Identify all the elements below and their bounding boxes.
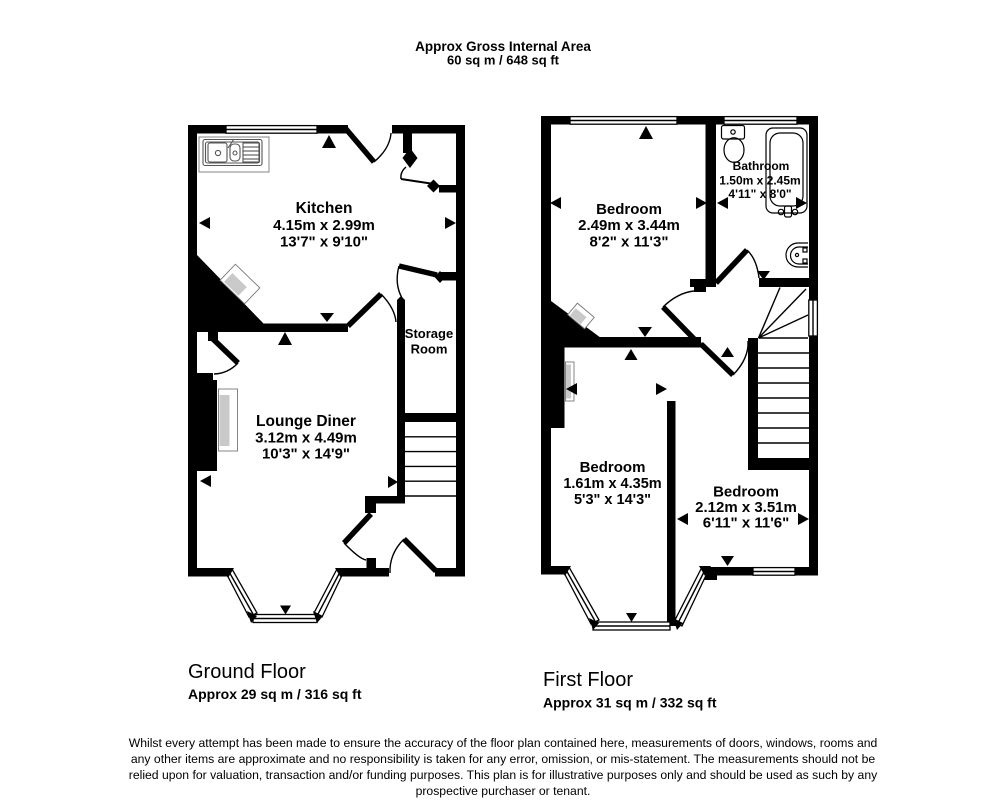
svg-text:Bathroom: Bathroom (733, 159, 790, 173)
svg-text:13'7" x 9'10": 13'7" x 9'10" (280, 234, 368, 251)
svg-text:Lounge Diner: Lounge Diner (256, 413, 356, 430)
svg-text:2.49m x 3.44m: 2.49m x 3.44m (578, 217, 680, 234)
svg-text:6'11" x 11'6": 6'11" x 11'6" (703, 515, 789, 532)
svg-text:First Floor: First Floor (543, 669, 633, 691)
svg-text:5'3" x 14'3": 5'3" x 14'3" (574, 492, 651, 508)
svg-text:relied upon for valuation, tra: relied upon for valuation, transaction a… (129, 768, 878, 782)
svg-text:Whilst every attempt has been: Whilst every attempt has been made to en… (129, 736, 878, 750)
svg-text:4.15m x 2.99m: 4.15m x 2.99m (273, 217, 375, 234)
svg-text:8'2" x 11'3": 8'2" x 11'3" (590, 234, 669, 251)
svg-text:Bedroom: Bedroom (713, 484, 779, 501)
svg-text:3.12m x 4.49m: 3.12m x 4.49m (255, 430, 357, 447)
svg-text:Kitchen: Kitchen (296, 200, 353, 217)
svg-text:Bedroom: Bedroom (580, 459, 646, 476)
svg-text:Approx 31 sq m / 332 sq ft: Approx 31 sq m / 332 sq ft (543, 695, 717, 711)
svg-text:1.50m x 2.45m: 1.50m x 2.45m (719, 174, 800, 188)
svg-text:4'11" x 8'0": 4'11" x 8'0" (728, 187, 791, 201)
svg-text:10'3" x 14'9": 10'3" x 14'9" (262, 446, 350, 463)
svg-text:Room: Room (411, 342, 448, 357)
svg-text:any other items are approximat: any other items are approximate and no r… (131, 752, 875, 766)
svg-text:2.12m x 3.51m: 2.12m x 3.51m (695, 499, 797, 516)
svg-text:Bedroom: Bedroom (596, 201, 662, 218)
svg-text:Ground Floor: Ground Floor (188, 661, 306, 683)
svg-text:prospective purchaser or tenan: prospective purchaser or tenant. (416, 784, 591, 798)
svg-text:60 sq m / 648 sq ft: 60 sq m / 648 sq ft (447, 53, 560, 68)
svg-text:1.61m x 4.35m: 1.61m x 4.35m (563, 476, 661, 492)
svg-text:Storage: Storage (405, 326, 453, 341)
svg-text:Approx 29 sq m / 316 sq ft: Approx 29 sq m / 316 sq ft (188, 686, 362, 702)
